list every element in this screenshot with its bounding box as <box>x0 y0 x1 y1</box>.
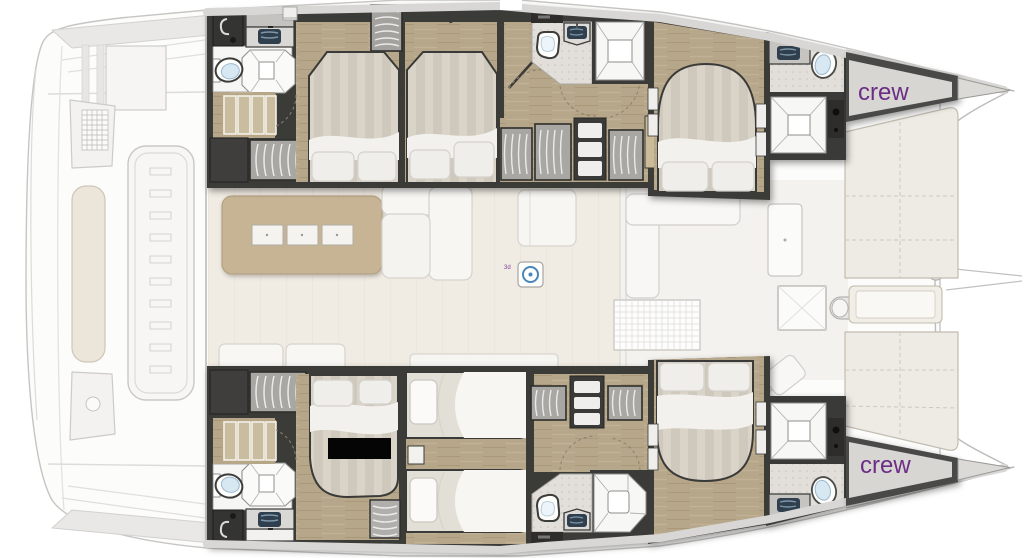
svg-text:crew: crew <box>858 79 909 106</box>
svg-text:crew: crew <box>860 452 911 479</box>
svg-text:3d: 3d <box>504 265 511 271</box>
